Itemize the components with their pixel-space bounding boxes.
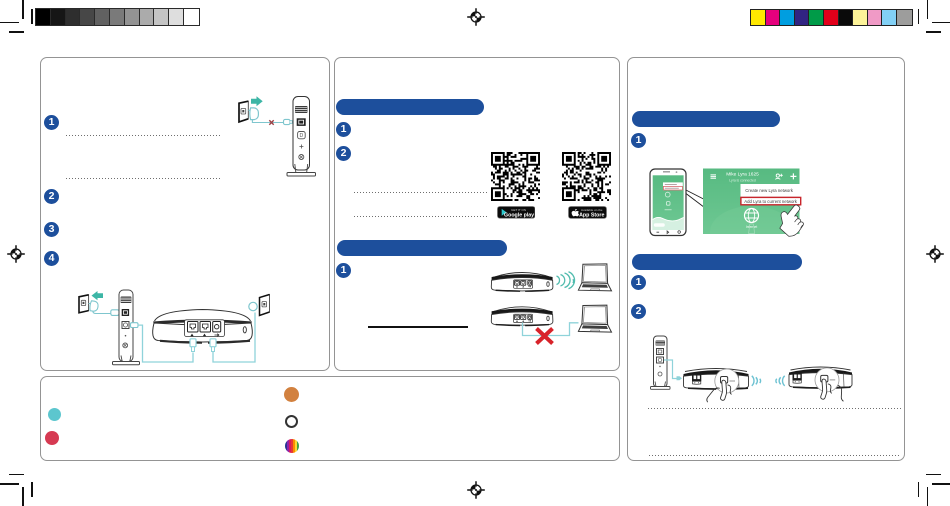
svg-text:Google play: Google play — [504, 212, 534, 218]
svg-text:D: D — [300, 133, 304, 139]
svg-text:Mike Lyra 1625: Mike Lyra 1625 — [726, 172, 759, 178]
svg-text:Create new Lyra network: Create new Lyra network — [745, 188, 793, 193]
svg-text:App Store: App Store — [579, 212, 604, 218]
svg-text:Add Lyra to current network: Add Lyra to current network — [744, 199, 797, 204]
svg-text:Internet: Internet — [746, 225, 758, 229]
svg-text:Lyra is connected: Lyra is connected — [729, 179, 756, 183]
